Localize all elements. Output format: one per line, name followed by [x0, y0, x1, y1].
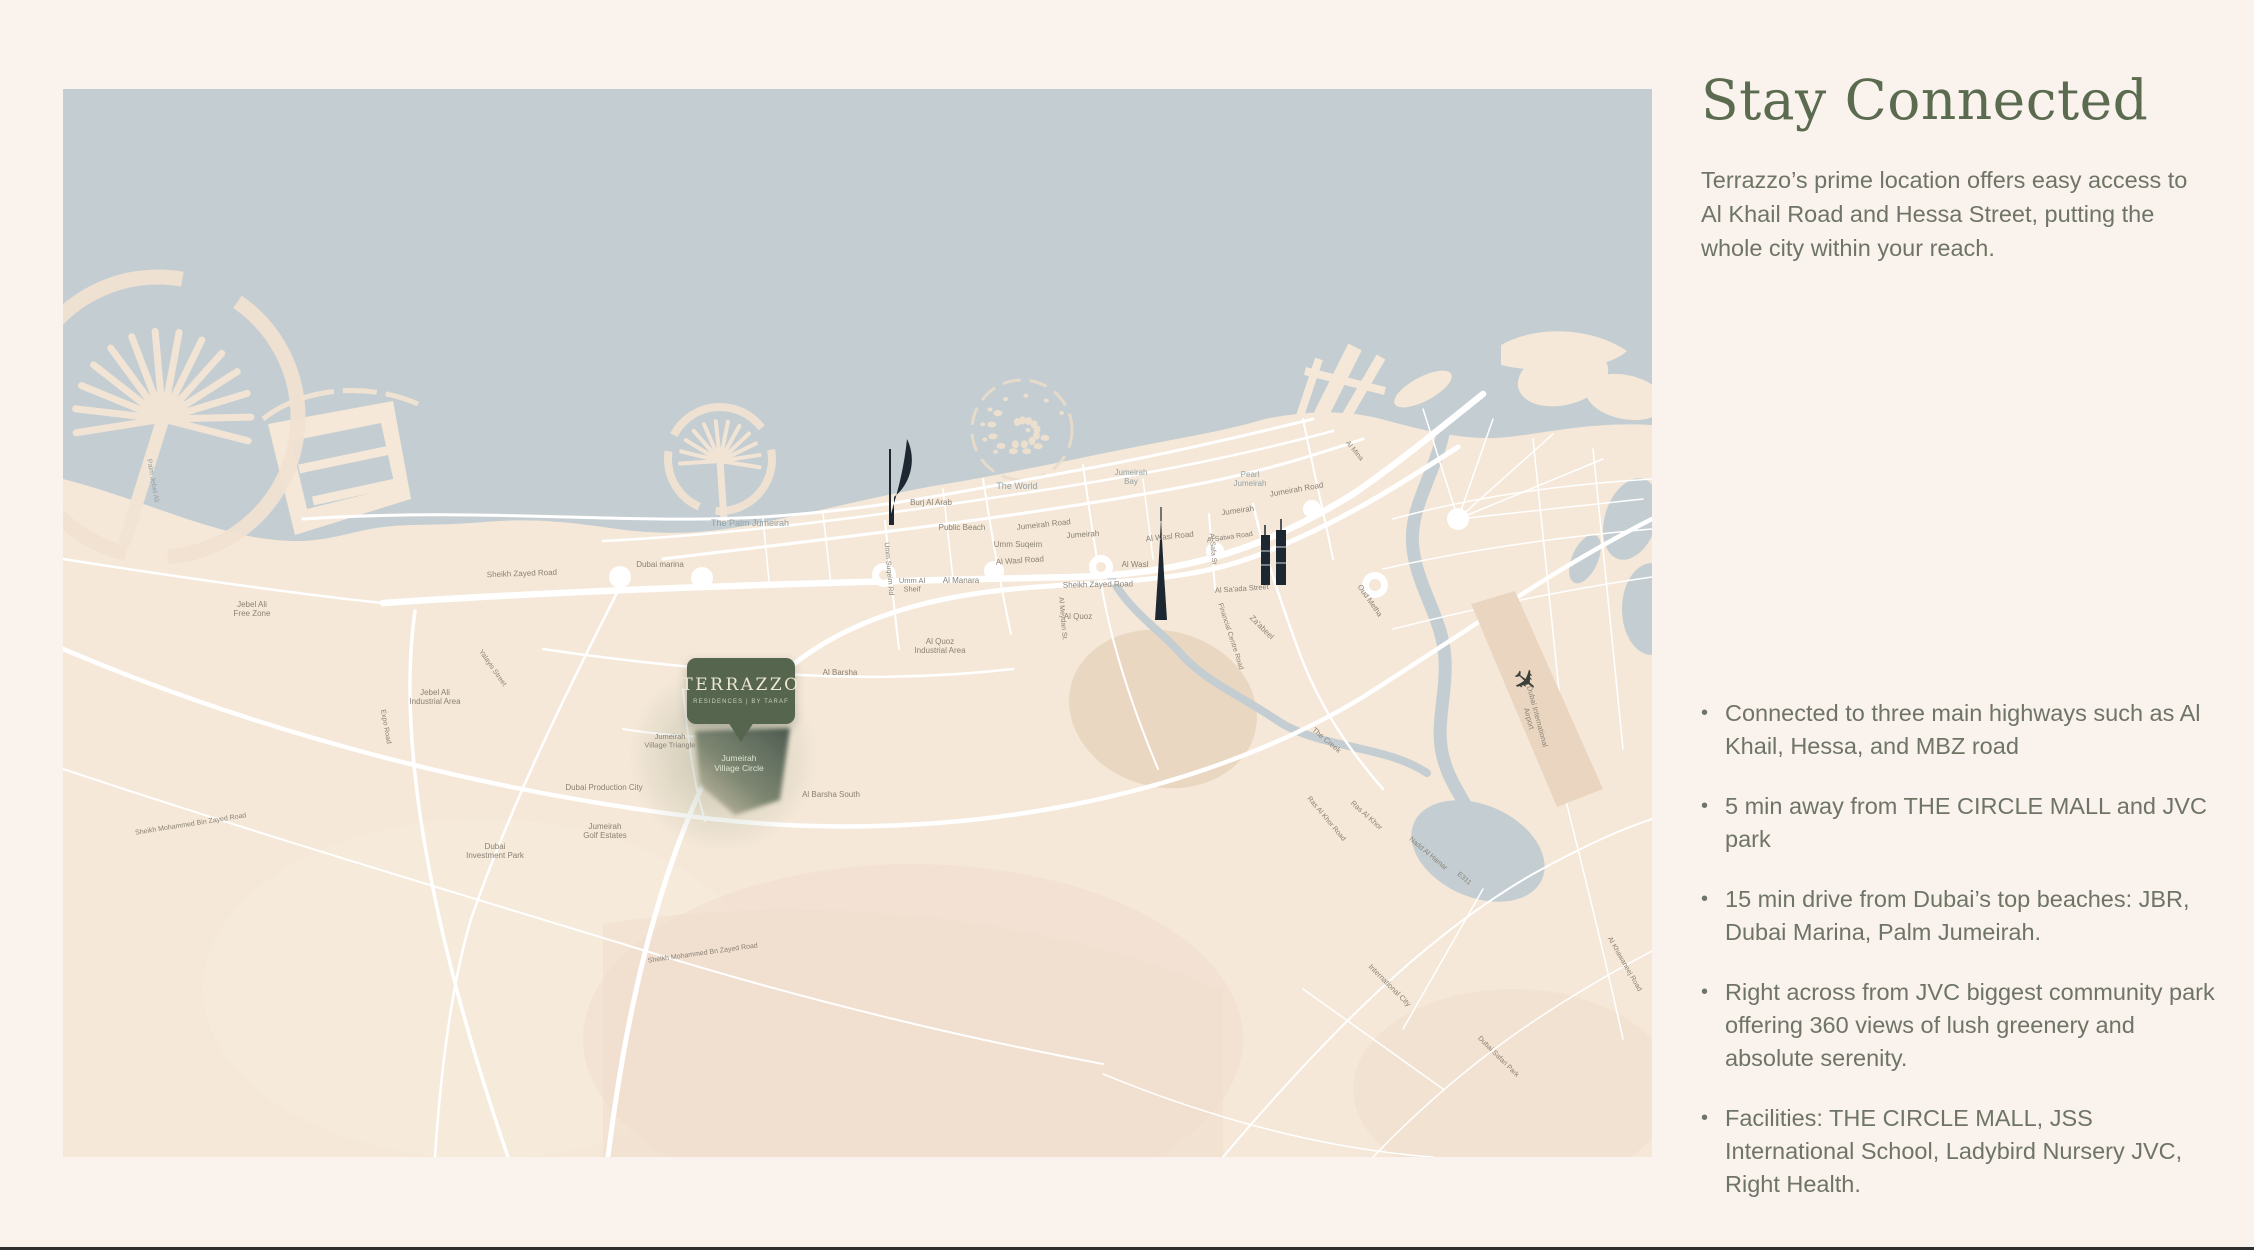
map-label: Sheikh Zayed Road	[1063, 579, 1133, 589]
benefit-item: •15 min drive from Dubai’s top beaches: …	[1701, 883, 2221, 949]
benefits-list: •Connected to three main highways such a…	[1701, 697, 2221, 1228]
map-label: Al Barsha	[823, 668, 858, 677]
page-title: Stay Connected	[1701, 70, 2221, 131]
terrazzo-logo-subtitle: RESIDENCES | BY TARAF	[693, 699, 789, 705]
benefit-item: •Right across from JVC biggest community…	[1701, 976, 2221, 1075]
map-canvas: ✈ The Palm JumeirahThe WorldJumeirahBayP…	[63, 89, 1652, 1157]
map-label: Jebel AliFree Zone	[234, 600, 271, 618]
info-panel: Stay Connected Terrazzo’s prime location…	[1701, 70, 2221, 288]
map-label: Burj Al Arab	[910, 498, 952, 507]
map-label: Public Beach	[939, 523, 986, 532]
benefit-item: •Facilities: THE CIRCLE MALL, JSS Intern…	[1701, 1102, 2221, 1201]
page: { "panel": { "title": "Stay Connected", …	[0, 0, 2254, 1250]
bullet-icon: •	[1701, 697, 1708, 730]
map-label: Dubai marina	[636, 560, 684, 569]
map-label: Al Wasl	[1122, 560, 1149, 569]
map-label: Umm Suqeim	[994, 540, 1043, 549]
map-label: JumeirahGolf Estates	[583, 822, 627, 840]
map-label: Al Manara	[943, 576, 980, 585]
benefit-item: •5 min away from THE CIRCLE MALL and JVC…	[1701, 790, 2221, 856]
bullet-icon: •	[1701, 976, 1708, 1009]
location-map: ✈ The Palm JumeirahThe WorldJumeirahBayP…	[63, 89, 1652, 1157]
benefit-item: •Connected to three main highways such a…	[1701, 697, 2221, 763]
map-label: Dubai Production City	[565, 783, 642, 792]
map-label: The Palm Jumeirah	[711, 518, 789, 528]
intro-paragraph: Terrazzo’s prime location offers easy ac…	[1701, 163, 2206, 265]
bullet-icon: •	[1701, 883, 1708, 916]
terrazzo-map-marker[interactable]: TERRAZZO RESIDENCES | BY TARAF	[687, 658, 795, 724]
map-label: The World	[996, 481, 1037, 491]
map-label: Al Barsha South	[802, 790, 860, 799]
terrazzo-logo: TERRAZZO	[681, 677, 800, 694]
bullet-icon: •	[1701, 1102, 1708, 1135]
map-label: Al Quoz	[1064, 612, 1092, 621]
bullet-icon: •	[1701, 790, 1708, 823]
